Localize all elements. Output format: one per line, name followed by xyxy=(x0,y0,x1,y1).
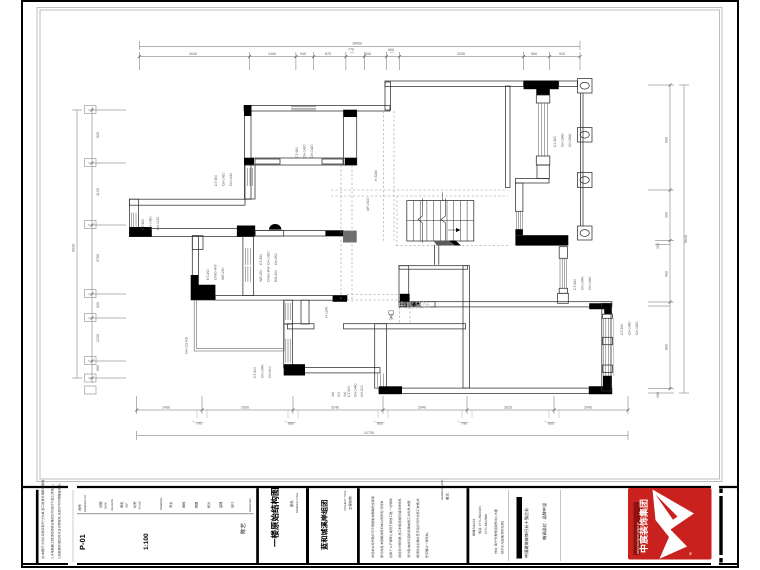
svg-text:870: 870 xyxy=(325,52,331,56)
svg-text:920: 920 xyxy=(96,302,100,308)
svg-text:850: 850 xyxy=(288,422,294,426)
svg-text:CH-2840: CH-2840 xyxy=(568,133,572,147)
svg-text:770: 770 xyxy=(348,48,354,52)
svg-text:备注:: 备注: xyxy=(446,492,450,500)
svg-text:920: 920 xyxy=(96,132,100,138)
svg-text:300: 300 xyxy=(665,212,669,218)
svg-text:琅东水元宝座(琅东站旁): 琅东水元宝座(琅东站旁) xyxy=(501,521,505,554)
svg-text:900: 900 xyxy=(388,48,394,52)
svg-text:中宸装饰: 中宸装饰 xyxy=(398,301,430,310)
svg-text:1:100: 1:100 xyxy=(143,533,150,550)
svg-text:CH-1130: CH-1130 xyxy=(156,217,160,230)
svg-text:CT-950: CT-950 xyxy=(141,219,145,230)
svg-text:CH-1440: CH-1440 xyxy=(628,321,632,335)
svg-text:DRAWING: DRAWING xyxy=(160,498,163,510)
svg-text:CH60-HW: CH60-HW xyxy=(267,266,271,282)
svg-text:H-1240: H-1240 xyxy=(325,306,329,317)
svg-text:300: 300 xyxy=(331,391,335,397)
svg-text:图号: 图号 xyxy=(78,504,82,510)
svg-text:860: 860 xyxy=(665,344,669,350)
svg-text:RO-250: RO-250 xyxy=(274,270,278,282)
svg-text:部分内容,本图纸版权归本公司所有,任何单: 部分内容,本图纸版权归本公司所有,任何单 xyxy=(380,501,384,558)
svg-text:CT-920: CT-920 xyxy=(620,324,624,335)
svg-text:设计部,由此引起的后果由施工方负责,本图: 设计部,由此引起的后果由施工方负责,本图 xyxy=(407,501,411,558)
svg-text:CT-950: CT-950 xyxy=(214,175,218,186)
svg-text:审定: 审定 xyxy=(120,501,124,508)
svg-text:中宸装饰集团: 中宸装饰集团 xyxy=(639,499,649,553)
svg-text:UP-1600: UP-1600 xyxy=(366,198,370,211)
svg-text:CH-900: CH-900 xyxy=(268,366,272,378)
svg-text:870: 870 xyxy=(337,391,341,397)
svg-text:设计: 设计 xyxy=(231,501,235,508)
svg-text:®: ® xyxy=(689,551,692,556)
svg-text:蓝和城溪岸组团: 蓝和城溪岸组团 xyxy=(320,500,329,550)
svg-text:中国建筑装饰行业十强企业: 中国建筑装饰行业十强企业 xyxy=(524,508,529,558)
svg-text:CH-1440: CH-1440 xyxy=(261,364,265,378)
svg-text:地址: 南宁市青秀区国贸中心大厦: 地址: 南宁市青秀区国贸中心大厦 xyxy=(494,509,498,554)
svg-text:3430: 3430 xyxy=(457,52,465,56)
svg-text:2040: 2040 xyxy=(584,406,592,410)
svg-text:900: 900 xyxy=(531,52,537,56)
svg-text:邮编:530023: 邮编:530023 xyxy=(472,518,476,536)
svg-text:9530: 9530 xyxy=(72,244,76,252)
svg-text:CH-1440: CH-1440 xyxy=(354,383,358,397)
svg-text:WR-250: WR-250 xyxy=(221,267,225,280)
svg-text:位和个人不得转让或用于其他工程,一切修改: 位和个人不得转让或用于其他工程,一切修改 xyxy=(389,498,393,558)
svg-text:SCALE: SCALE xyxy=(139,501,142,510)
svg-text:2230: 2230 xyxy=(96,334,100,342)
svg-text:850: 850 xyxy=(548,422,554,426)
svg-text:1400: 1400 xyxy=(268,52,276,56)
svg-text:CH-1440: CH-1440 xyxy=(588,276,592,290)
svg-text:一楼原始结构图: 一楼原始结构图 xyxy=(270,487,280,547)
svg-text:600: 600 xyxy=(365,52,371,56)
svg-text:910: 910 xyxy=(559,52,565,56)
svg-text:DATE: DATE xyxy=(105,502,108,509)
svg-text:850: 850 xyxy=(377,422,383,426)
svg-text:P-01: P-01 xyxy=(78,534,87,550)
svg-text:CH-1420: CH-1420 xyxy=(267,251,271,265)
svg-text:格调品位 · 品牌中坚: 格调品位 · 品牌中坚 xyxy=(542,503,547,540)
svg-text:1400: 1400 xyxy=(162,406,170,410)
svg-text:CT-900: CT-900 xyxy=(347,386,351,397)
svg-text:940: 940 xyxy=(300,52,306,56)
svg-text:CH-1840: CH-1840 xyxy=(561,133,565,147)
svg-text:3700: 3700 xyxy=(96,254,100,262)
svg-text:签字确认一律无效。: 签字确认一律无效。 xyxy=(425,530,429,558)
svg-text:CH-1850: CH-1850 xyxy=(635,321,639,335)
svg-text:41730: 41730 xyxy=(364,431,374,435)
svg-text:安全: 安全 xyxy=(169,501,173,508)
svg-text:790: 790 xyxy=(461,422,467,426)
svg-text:工程名称:: 工程名称: xyxy=(349,495,353,510)
svg-text:监理: 监理 xyxy=(219,501,223,508)
svg-text:960: 960 xyxy=(665,271,669,277)
svg-text:CH-1420: CH-1420 xyxy=(222,172,226,186)
svg-text:GENERAL NOTE: GENERAL NOTE xyxy=(441,480,444,500)
svg-text:KT-250: KT-250 xyxy=(206,269,210,280)
svg-text:790: 790 xyxy=(196,422,202,426)
svg-text:CH-1440: CH-1440 xyxy=(581,276,585,290)
svg-text:PROJECT TITLE: PROJECT TITLE xyxy=(344,490,347,510)
svg-text:H-5240: H-5240 xyxy=(374,170,378,181)
svg-text:CT-960: CT-960 xyxy=(295,147,299,158)
svg-text:C1-920: C1-920 xyxy=(553,136,557,147)
svg-text:900: 900 xyxy=(96,365,100,371)
svg-text:3240: 3240 xyxy=(331,406,339,410)
svg-text:2640: 2640 xyxy=(189,52,197,56)
svg-text:S&P: S&P xyxy=(126,503,129,508)
svg-text:纸须经业主确认签字后方可作为施工依据,未: 纸须经业主确认签字后方可作为施工依据,未 xyxy=(416,498,420,558)
svg-text:CH-1190: CH-1190 xyxy=(229,173,233,186)
svg-text:审核: 审核 xyxy=(182,501,186,508)
svg-text:2.水电隐蔽工程须经验收合格后方可进行下道工序施工。: 2.水电隐蔽工程须经验收合格后方可进行下道工序施工。 xyxy=(51,482,55,559)
svg-text:0771-5502588: 0771-5502588 xyxy=(484,514,488,534)
svg-text:日期: 日期 xyxy=(99,502,103,508)
svg-text:比例: 比例 xyxy=(133,502,137,508)
svg-text:须经设计师同意,施工时若有疑问请及时联系: 须经设计师同意,施工时若有疑问请及时联系 xyxy=(398,498,402,558)
svg-text:150: 150 xyxy=(656,392,660,398)
svg-text:陈艺: 陈艺 xyxy=(240,522,247,534)
svg-text:CH-500: CH-500 xyxy=(360,385,364,397)
svg-text:3.如有疑问请及时与设计师联系,未经许可不得擅自修改。: 3.如有疑问请及时与设计师联系,未经许可不得擅自修改。 xyxy=(58,481,62,559)
svg-text:CH-1420: CH-1420 xyxy=(310,144,314,158)
svg-text:CH60-HW: CH60-HW xyxy=(214,264,218,280)
svg-text:150: 150 xyxy=(656,243,660,249)
svg-text:CT-950: CT-950 xyxy=(259,254,263,265)
svg-text:600: 600 xyxy=(665,137,669,143)
svg-text:2620: 2620 xyxy=(504,406,512,410)
svg-text:DRAWING NO: DRAWING NO xyxy=(84,495,87,512)
svg-text:未经本公司书面许可不得复制本图纸的全部或: 未经本公司书面许可不得复制本图纸的全部或 xyxy=(371,496,375,558)
svg-text:1130: 1130 xyxy=(96,188,100,196)
svg-text:WR-250: WR-250 xyxy=(259,269,263,282)
svg-text:CH-950: CH-950 xyxy=(274,253,278,265)
svg-text:CH-1420: CH-1420 xyxy=(149,216,153,230)
svg-text:CH-115 KD: CH-115 KD xyxy=(185,336,189,354)
svg-text:制图: 制图 xyxy=(195,502,199,508)
svg-text:CH-1420: CH-1420 xyxy=(303,144,307,158)
svg-text:DESIGNER: DESIGNER xyxy=(249,498,252,512)
svg-text:18450: 18450 xyxy=(352,42,362,46)
svg-text:电话: 0771-5500023: 电话: 0771-5500023 xyxy=(478,506,482,534)
svg-text:CT-920: CT-920 xyxy=(573,279,577,290)
svg-text:DRAWING TITLE: DRAWING TITLE xyxy=(296,493,299,513)
svg-text:9640: 9640 xyxy=(684,235,688,243)
svg-text:图名: 图名 xyxy=(290,500,294,507)
svg-text:SIG.DATE: SIG.DATE xyxy=(111,499,114,511)
svg-text:2940: 2940 xyxy=(418,406,426,410)
svg-text:CT-900: CT-900 xyxy=(253,367,257,378)
svg-text:注:本图尺寸均以现场实际尺寸为准,施工前请仔细核对图纸: 注:本图尺寸均以现场实际尺寸为准,施工前请仔细核对图纸 xyxy=(41,480,45,559)
svg-text:校对: 校对 xyxy=(207,501,211,508)
svg-text:2500: 2500 xyxy=(241,406,249,410)
